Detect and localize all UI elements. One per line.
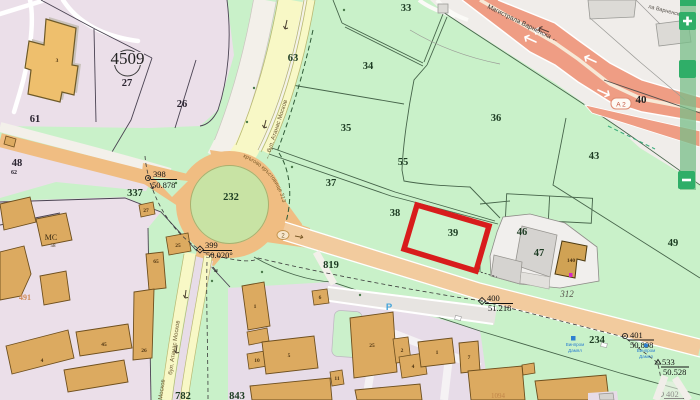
svg-text:43: 43	[589, 151, 600, 162]
svg-text:11: 11	[334, 376, 339, 382]
svg-text:45: 45	[101, 342, 107, 348]
svg-text:39: 39	[448, 228, 459, 239]
svg-text:34: 34	[363, 61, 374, 72]
svg-text:50.878: 50.878	[152, 180, 175, 190]
svg-text:27: 27	[143, 208, 149, 214]
svg-text:312: 312	[559, 289, 574, 299]
svg-text:232: 232	[223, 192, 239, 203]
svg-text:Дамял: Дамял	[639, 354, 653, 359]
svg-text:62: 62	[11, 170, 17, 176]
svg-text:4: 4	[412, 364, 415, 370]
svg-text:26: 26	[177, 99, 188, 110]
svg-text:400: 400	[487, 293, 500, 303]
svg-text:47: 47	[534, 248, 545, 259]
svg-text:58: 58	[51, 244, 57, 249]
svg-text:10: 10	[254, 358, 260, 364]
svg-text:4509: 4509	[111, 49, 145, 68]
svg-text:140: 140	[567, 258, 576, 264]
svg-text:25: 25	[175, 243, 181, 249]
svg-text:38: 38	[390, 208, 401, 219]
svg-text:51.218: 51.218	[488, 303, 511, 313]
svg-text:1: 1	[254, 304, 257, 310]
svg-text:37: 37	[326, 178, 337, 189]
svg-text:1094: 1094	[491, 392, 506, 400]
svg-text:533: 533	[662, 357, 675, 367]
svg-text:P: P	[386, 302, 393, 313]
svg-text:6: 6	[319, 295, 322, 301]
svg-text:46: 46	[517, 227, 528, 238]
svg-text:7: 7	[468, 355, 471, 361]
svg-text:65: 65	[153, 259, 159, 265]
svg-text:27: 27	[122, 78, 133, 89]
svg-text:50.528: 50.528	[663, 367, 686, 377]
svg-text:25: 25	[369, 343, 375, 349]
svg-text:Винпром: Винпром	[637, 348, 656, 353]
svg-text:50.020°: 50.020°	[206, 250, 233, 260]
svg-text:40: 40	[636, 94, 648, 106]
svg-text:61: 61	[30, 114, 41, 125]
svg-text:49: 49	[668, 238, 679, 249]
svg-text:Дамял: Дамял	[568, 348, 582, 353]
svg-text:3: 3	[56, 58, 59, 64]
svg-text:1: 1	[436, 350, 439, 356]
svg-text:337: 337	[127, 188, 143, 199]
svg-text:5: 5	[288, 353, 291, 359]
svg-text:399: 399	[205, 240, 218, 250]
svg-text:782: 782	[175, 391, 191, 400]
svg-text:4: 4	[41, 358, 44, 364]
svg-text:401: 401	[630, 330, 643, 340]
svg-text:55: 55	[398, 157, 409, 168]
svg-text:48: 48	[12, 158, 23, 169]
svg-text:35: 35	[341, 123, 352, 134]
svg-text:33: 33	[401, 3, 412, 14]
svg-text:398: 398	[153, 169, 166, 179]
svg-text:Винпром: Винпром	[566, 342, 585, 347]
svg-text:A 2: A 2	[616, 102, 626, 109]
svg-text:36: 36	[491, 113, 502, 124]
svg-text:491: 491	[19, 293, 31, 302]
svg-text:26: 26	[141, 348, 147, 354]
svg-text:63: 63	[288, 53, 299, 64]
svg-text:843: 843	[229, 391, 245, 400]
svg-text:2: 2	[401, 348, 404, 354]
svg-text:819: 819	[323, 260, 339, 271]
svg-text:МС: МС	[45, 233, 57, 242]
